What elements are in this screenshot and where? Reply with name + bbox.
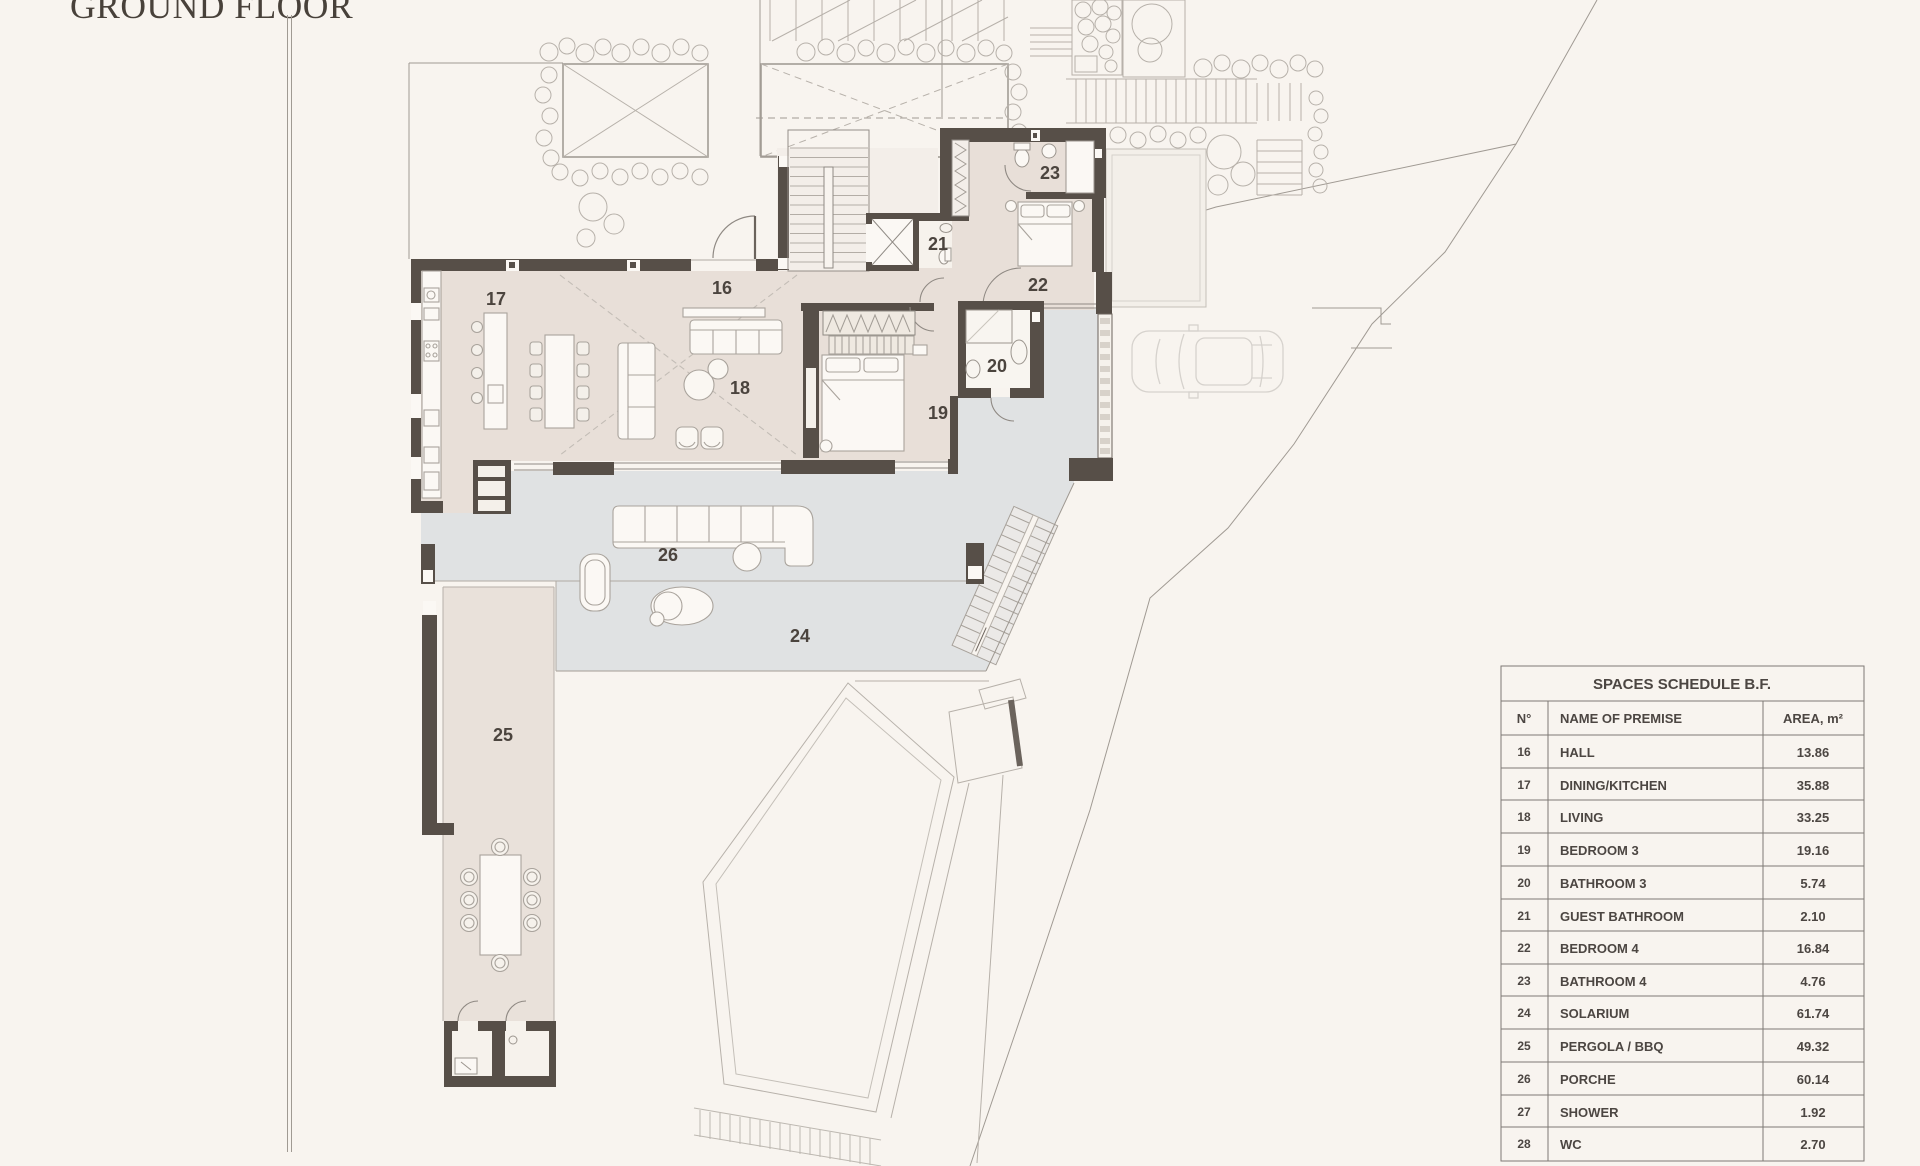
svg-text:25: 25	[1517, 1039, 1531, 1053]
svg-text:25: 25	[493, 725, 513, 745]
svg-text:20: 20	[1517, 876, 1531, 890]
svg-text:60.14: 60.14	[1797, 1072, 1830, 1087]
svg-text:4.76: 4.76	[1800, 974, 1825, 989]
svg-text:BEDROOM 3: BEDROOM 3	[1560, 843, 1639, 858]
svg-text:17: 17	[1517, 778, 1531, 792]
svg-text:19.16: 19.16	[1797, 843, 1830, 858]
svg-text:NAME OF PREMISE: NAME OF PREMISE	[1560, 711, 1682, 726]
svg-text:23: 23	[1040, 163, 1060, 183]
svg-text:GUEST BATHROOM: GUEST BATHROOM	[1560, 909, 1684, 924]
svg-text:5.74: 5.74	[1800, 876, 1826, 891]
svg-text:1.92: 1.92	[1800, 1105, 1825, 1120]
svg-text:27: 27	[1517, 1105, 1531, 1119]
svg-text:SOLARIUM: SOLARIUM	[1560, 1006, 1629, 1021]
svg-text:61.74: 61.74	[1797, 1006, 1830, 1021]
svg-text:26: 26	[658, 545, 678, 565]
svg-text:26: 26	[1517, 1072, 1531, 1086]
svg-text:19: 19	[928, 403, 948, 423]
svg-text:33.25: 33.25	[1797, 810, 1830, 825]
svg-text:GROUND FLOOR: GROUND FLOOR	[70, 0, 353, 26]
svg-text:21: 21	[928, 234, 948, 254]
svg-text:SPACES SCHEDULE B.F.: SPACES SCHEDULE B.F.	[1593, 676, 1771, 693]
svg-text:2.70: 2.70	[1800, 1137, 1825, 1152]
svg-text:21: 21	[1517, 909, 1531, 923]
svg-text:DINING/KITCHEN: DINING/KITCHEN	[1560, 778, 1667, 793]
svg-text:22: 22	[1517, 941, 1531, 955]
svg-text:24: 24	[1517, 1006, 1531, 1020]
svg-text:LIVING: LIVING	[1560, 810, 1603, 825]
svg-text:PERGOLA / BBQ: PERGOLA / BBQ	[1560, 1039, 1664, 1054]
svg-text:16: 16	[1517, 745, 1531, 759]
svg-text:19: 19	[1517, 843, 1531, 857]
svg-text:23: 23	[1517, 974, 1531, 988]
svg-text:PORCHE: PORCHE	[1560, 1072, 1616, 1087]
svg-text:17: 17	[486, 289, 506, 309]
svg-text:SHOWER: SHOWER	[1560, 1105, 1619, 1120]
svg-text:N°: N°	[1517, 711, 1532, 726]
svg-text:BATHROOM 3: BATHROOM 3	[1560, 876, 1646, 891]
svg-text:16: 16	[712, 278, 732, 298]
svg-text:HALL: HALL	[1560, 745, 1595, 760]
svg-text:28: 28	[1517, 1137, 1531, 1151]
svg-text:BATHROOM 4: BATHROOM 4	[1560, 974, 1647, 989]
svg-text:20: 20	[987, 356, 1007, 376]
svg-text:BEDROOM 4: BEDROOM 4	[1560, 941, 1640, 956]
svg-text:24: 24	[790, 626, 810, 646]
svg-text:22: 22	[1028, 275, 1048, 295]
svg-text:18: 18	[730, 378, 750, 398]
svg-text:13.86: 13.86	[1797, 745, 1830, 760]
svg-text:AREA, m²: AREA, m²	[1783, 711, 1844, 726]
svg-text:WC: WC	[1560, 1137, 1582, 1152]
svg-text:2.10: 2.10	[1800, 909, 1825, 924]
svg-text:49.32: 49.32	[1797, 1039, 1830, 1054]
svg-text:16.84: 16.84	[1797, 941, 1830, 956]
svg-text:18: 18	[1517, 810, 1531, 824]
svg-text:35.88: 35.88	[1797, 778, 1830, 793]
